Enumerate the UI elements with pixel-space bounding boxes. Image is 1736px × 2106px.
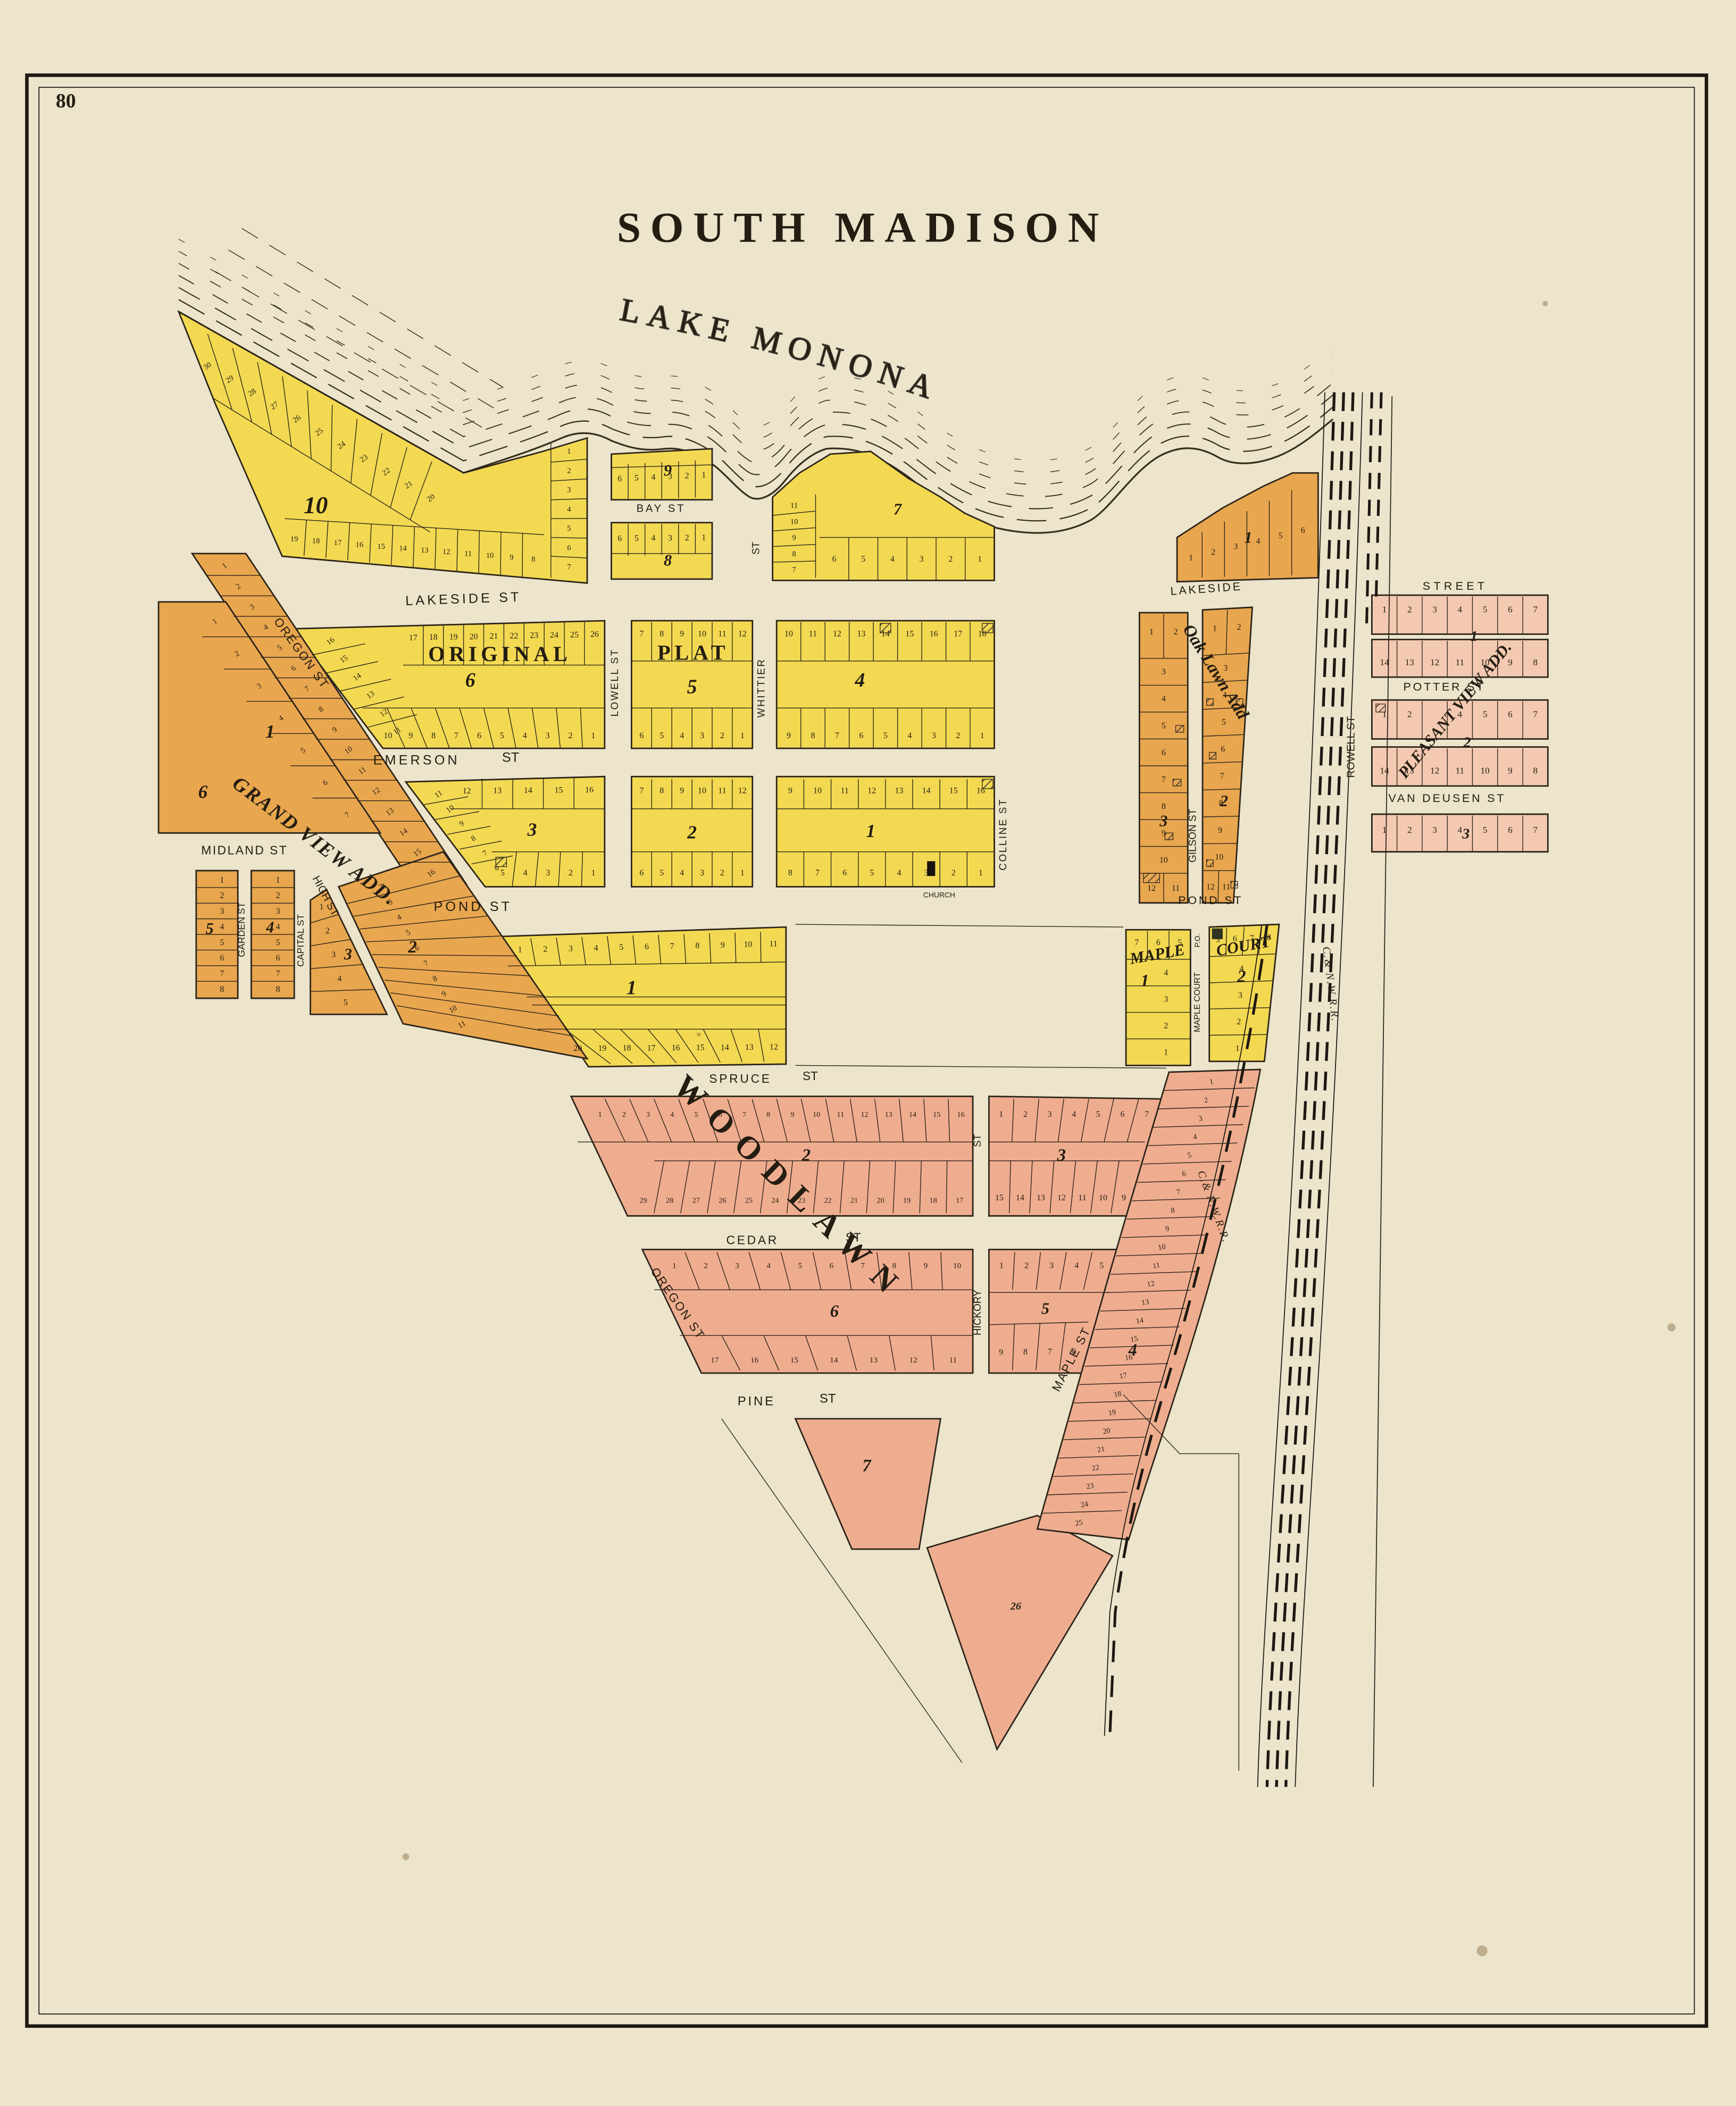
lot-number: 2 — [622, 1110, 626, 1119]
lot-number: 17 — [1119, 1371, 1128, 1381]
lot-number: 10 — [813, 1110, 820, 1119]
lot-number: 2 — [685, 533, 689, 542]
lot-number: 11 — [1222, 882, 1230, 891]
lot-number: 5 — [1279, 531, 1283, 540]
building-hatched — [1173, 779, 1181, 786]
lot-number: 1 — [999, 1261, 1004, 1270]
street-label-spruce_st: ST — [803, 1069, 818, 1083]
lot-number: 2 — [1024, 1261, 1029, 1270]
paper-stain — [1542, 301, 1548, 306]
paper-stain — [1667, 1323, 1675, 1331]
lot-number: 10 — [486, 551, 494, 560]
lot-number: 9 — [680, 786, 684, 795]
block-number-ol1: 1 — [1244, 529, 1252, 547]
lot-number: 2 — [948, 555, 953, 564]
lot-number: 3 — [220, 907, 224, 916]
block-number-wd7: 7 — [862, 1456, 872, 1475]
lot-number: 2 — [1407, 604, 1412, 614]
lot-number: 1 — [702, 533, 706, 542]
street-label-pond_e: POND ST — [1178, 894, 1243, 907]
building-hatched — [1144, 873, 1159, 883]
block-number-pond1: 1 — [627, 976, 637, 999]
street-label-midland: MIDLAND ST — [201, 843, 288, 857]
lot-number: 9 — [1218, 826, 1222, 835]
lot-number: 12 — [1430, 766, 1439, 776]
lot-number: 11 — [949, 1356, 957, 1365]
lot-number: 4 — [680, 868, 684, 878]
lot-number: 8 — [660, 630, 664, 639]
lot-number: 11 — [718, 630, 726, 639]
lot-number: 16 — [930, 630, 938, 639]
lot-number: 7 — [1162, 775, 1166, 784]
lot-number: 8 — [276, 985, 280, 994]
lot-number: 5 — [500, 868, 505, 878]
railroad-track — [1286, 392, 1353, 1787]
lot-number: 4 — [1458, 825, 1463, 835]
lot-number: 6 — [1301, 526, 1305, 535]
lot-number: 12 — [738, 786, 747, 795]
lot-number: 4 — [220, 922, 224, 931]
lot-number: 11 — [840, 786, 848, 795]
street-label-gilson: GILSON ST — [1187, 808, 1198, 862]
block-number-wd4: 4 — [1128, 1341, 1137, 1360]
paper-stain — [403, 1853, 410, 1860]
lot-number: 22 — [1091, 1463, 1100, 1473]
lot-number: 12 — [443, 548, 450, 556]
lot-number: 9 — [999, 1348, 1003, 1357]
addition-label-plat: PLAT — [657, 640, 729, 664]
row-line — [796, 924, 1123, 927]
lot-number: 5 — [1483, 825, 1488, 835]
lot-number: 10 — [953, 1261, 961, 1270]
lot-number: 3 — [1048, 1110, 1052, 1119]
lot-number: 7 — [1533, 604, 1538, 614]
street-label-emerson: EMERSON — [373, 753, 460, 767]
lot-number: 5 — [1483, 709, 1488, 720]
lot-number: 10 — [383, 731, 392, 740]
lot-number: 2 — [685, 471, 689, 480]
lot-number: 4 — [766, 1261, 771, 1270]
lot-number: 8 — [792, 550, 796, 558]
lot-number: 4 — [1164, 968, 1168, 977]
street-label-hickory_st_upper: ST — [972, 1134, 983, 1147]
page-number: 80 — [56, 90, 76, 112]
lot-number: 27 — [692, 1197, 700, 1205]
lot-number: 14 — [922, 786, 931, 795]
block-number-wd26: 26 — [1010, 1601, 1022, 1612]
block-number-op5: 5 — [687, 676, 697, 698]
lot-number: 9 — [510, 554, 513, 562]
lot-number: 19 — [598, 1044, 606, 1053]
lot-number: 14 — [1136, 1316, 1145, 1326]
lot-number: 6 — [1508, 825, 1513, 835]
lot-number: 18 — [312, 537, 320, 546]
lot-number: 6 — [1508, 604, 1513, 614]
lot-number: 3 — [1432, 825, 1437, 835]
lot-number: 1 — [276, 875, 280, 884]
lot-number: 4 — [670, 1110, 674, 1119]
block-number-pv2: 2 — [1463, 734, 1471, 751]
lot-number: 1 — [1189, 553, 1193, 562]
lot-number: 19 — [449, 633, 458, 642]
lot-number: 14 — [1016, 1193, 1024, 1202]
lot-number: 1 — [220, 875, 224, 884]
lot-number: 22 — [510, 631, 518, 640]
building-hatched — [1176, 725, 1184, 732]
lot-number: 8 — [811, 731, 815, 740]
lot-number: 7 — [1145, 1110, 1149, 1119]
lot-number: 10 — [790, 517, 798, 526]
lot-number: 6 — [567, 544, 571, 552]
block-op4 — [777, 621, 994, 748]
block-number-mc1: 1 — [1140, 971, 1149, 990]
lot-number: 29 — [640, 1197, 647, 1205]
lot-number: 5 — [798, 1261, 802, 1270]
lot-number: 15 — [790, 1356, 798, 1365]
lot-number: 10 — [813, 786, 822, 795]
street-label-maple_court: MAPLE COURT — [1193, 972, 1202, 1032]
lot-number: 6 — [842, 868, 847, 878]
lot-line — [761, 932, 761, 962]
lot-number: 11 — [790, 502, 798, 510]
lot-number: 4 — [338, 974, 342, 983]
lot-number: 8 — [1533, 657, 1538, 667]
lot-number: 7 — [639, 630, 644, 639]
block-number-pv1: 1 — [1470, 628, 1478, 645]
lot-number: 14 — [1380, 766, 1389, 776]
lot-number: 1 — [979, 868, 983, 878]
lot-number: 8 — [1162, 802, 1166, 811]
lot-number: 5 — [619, 943, 623, 952]
block-number-ol2: 2 — [1220, 792, 1228, 810]
lot-number: 11 — [464, 550, 472, 558]
lot-number: 15 — [995, 1193, 1004, 1202]
lot-number: 12 — [909, 1356, 917, 1365]
lot-number: 2 — [1023, 1110, 1028, 1119]
lot-number: 4 — [523, 868, 528, 878]
street-label-capital: CAPITAL ST — [295, 914, 306, 967]
lot-number: 2 — [569, 731, 573, 740]
block-number-op9: 9 — [664, 461, 672, 479]
street-label-hickory: HICKORY — [972, 1290, 983, 1335]
lot-number: 3 — [932, 731, 936, 740]
lot-number: 3 — [1164, 995, 1168, 1004]
lot-number: 5 — [883, 731, 888, 740]
block-number-wd6: 6 — [830, 1302, 839, 1321]
lake-name: LAKE MONONA — [617, 292, 945, 408]
lot-number: 7 — [1048, 1347, 1052, 1356]
block-wd26 — [927, 1516, 1113, 1750]
street-label-lakeside_w: LAKESIDE ST — [405, 590, 522, 609]
lot-number: 13 — [857, 630, 865, 639]
lot-number: 1 — [978, 555, 982, 564]
lot-number: 9 — [1122, 1193, 1126, 1202]
lot-number: 15 — [933, 1110, 940, 1119]
lot-number: 5 — [1096, 1110, 1100, 1119]
lot-number: 4 — [651, 534, 655, 543]
lot-number: 6 — [1162, 748, 1166, 757]
lot-number: 7 — [1533, 825, 1538, 835]
lot-number: 13 — [745, 1043, 754, 1052]
lot-number: 21 — [489, 632, 498, 641]
lot-number: 4 — [1256, 537, 1260, 546]
lot-number: 7 — [1533, 709, 1538, 720]
lot-number: 1 — [598, 1110, 602, 1119]
lot-number: 6 — [276, 954, 280, 963]
block-number-op1: 1 — [866, 820, 875, 841]
lot-number: 6 — [639, 731, 644, 740]
lot-number: 3 — [668, 533, 672, 542]
lot-number: 10 — [1099, 1193, 1107, 1202]
lot-number: 2 — [220, 891, 224, 900]
lot-number: 12 — [463, 787, 471, 796]
lot-number: 6 — [1221, 745, 1225, 754]
lot-number: 3 — [546, 868, 550, 878]
lot-number: 1 — [591, 868, 596, 878]
building-hatched — [982, 623, 993, 633]
lot-number: 6 — [645, 942, 649, 951]
lot-number: 12 — [1057, 1193, 1066, 1202]
lot-number: 7 — [792, 566, 796, 574]
street-label-pond_w: POND ST — [433, 899, 512, 914]
lot-number: 2 — [567, 466, 571, 475]
lot-number: 4 — [276, 922, 280, 931]
lot-number: 8 — [788, 868, 792, 878]
lot-number: 4 — [1162, 695, 1166, 704]
block-number-op3: 3 — [527, 818, 537, 840]
lot-number: 7 — [567, 563, 571, 572]
block-number-gv2: 2 — [407, 938, 416, 957]
lot-number: 3 — [1238, 991, 1242, 1000]
lot-number: 11 — [837, 1110, 845, 1119]
lot-number: 14 — [524, 786, 532, 795]
lot-number: 12 — [1146, 1279, 1155, 1289]
lot-number: 5 — [1222, 717, 1226, 726]
lot-number: 23 — [1086, 1482, 1095, 1491]
lot-number: 15 — [949, 786, 958, 795]
street-label-bay: BAY ST — [637, 503, 686, 515]
lot-number: 11 — [809, 630, 817, 639]
block-number-mc2: 2 — [1237, 967, 1246, 987]
lot-number: 2 — [704, 1261, 708, 1270]
lot-number: 11 — [1456, 766, 1465, 776]
lot-number: 7 — [220, 970, 224, 979]
lot-number: 6 — [832, 555, 836, 564]
lot-number: 20 — [470, 632, 478, 641]
lot-number: 24 — [1080, 1500, 1089, 1509]
block-ol1 — [1177, 473, 1318, 582]
lot-number: 5 — [635, 473, 639, 482]
lot-number: 2 — [952, 868, 956, 878]
lot-number: 20 — [573, 1044, 582, 1053]
lot-number: 5 — [344, 998, 348, 1007]
block-number-pv3: 3 — [1462, 825, 1470, 842]
lot-number: 10 — [1159, 856, 1168, 865]
lot-number: 9 — [790, 1110, 794, 1119]
lot-number: 4 — [1458, 604, 1463, 614]
lot-number: 13 — [1405, 657, 1414, 667]
lot-number: 13 — [1037, 1193, 1045, 1202]
lot-number: 10 — [784, 630, 793, 639]
south-madison-plat-map: 80SOUTH MADISONLAKE MONONA30292827262524… — [0, 0, 1736, 2105]
street-label-spruce: SPRUCE — [709, 1072, 771, 1085]
lot-number: 10 — [1215, 853, 1223, 862]
lot-number: 9 — [721, 941, 725, 950]
lot-number: 8 — [531, 555, 535, 564]
lot-number: 6 — [477, 731, 481, 740]
lot-number: 18 — [1113, 1390, 1122, 1399]
lot-number: 3 — [1432, 604, 1437, 614]
lot-number: 6 — [1508, 709, 1513, 720]
lot-number: 11 — [1172, 884, 1180, 893]
lot-number: 3 — [567, 486, 571, 495]
lot-number: 1 — [1213, 624, 1217, 633]
lot-number: 9 — [1508, 657, 1513, 667]
lot-number: 5 — [500, 731, 504, 740]
lot-number: 8 — [695, 941, 699, 950]
lot-number: 26 — [719, 1197, 726, 1205]
lot-number: 1 — [1236, 1044, 1240, 1053]
lot-number: 5 — [635, 534, 639, 543]
building-hatched — [1231, 881, 1238, 888]
lot-number: 1 — [702, 471, 706, 480]
street-label-emerson_st: ST — [502, 750, 519, 765]
lot-number: 24 — [550, 631, 558, 640]
lot-number: 5 — [1099, 1261, 1104, 1270]
lot-number: 3 — [331, 950, 336, 959]
lot-number: 3 — [276, 907, 280, 916]
lot-number: 8 — [220, 985, 224, 994]
lot-number: 15 — [377, 542, 385, 551]
lot-number: 15 — [696, 1043, 705, 1052]
lot-number: 7 — [815, 868, 820, 878]
lot-number: 6 — [617, 534, 622, 543]
lot-number: 1 — [1382, 604, 1387, 614]
street-label-colline: COLLINE ST — [998, 798, 1009, 871]
lot-number: 8 — [1533, 766, 1538, 776]
lot-number: 4 — [1074, 1261, 1079, 1270]
railroad-track — [1276, 392, 1343, 1787]
building-hatched — [1165, 833, 1173, 840]
lot-number: 8 — [766, 1110, 770, 1119]
lot-number: 6 — [220, 954, 224, 963]
lot-number: 4 — [897, 868, 901, 878]
lot-number: 12 — [1430, 657, 1439, 667]
lot-number: 10 — [1157, 1242, 1166, 1252]
lot-number: 25 — [570, 630, 579, 639]
lot-number: 4 — [567, 505, 571, 514]
lot-number: 12 — [1147, 884, 1156, 893]
lot-number: 7 — [276, 970, 280, 979]
lot-number: 1 — [1164, 1048, 1168, 1057]
addition-label-original: ORIGINAL — [428, 642, 571, 666]
lot-number: 21 — [1097, 1444, 1106, 1454]
railroad-spur — [1366, 392, 1372, 632]
lot-number: 6 — [859, 731, 863, 740]
lot-number: 25 — [745, 1197, 753, 1205]
lot-number: 11 — [1078, 1193, 1086, 1202]
lot-number: 2 — [543, 945, 547, 954]
block-number-gv6: 6 — [198, 781, 208, 803]
lot-number: 21 — [850, 1197, 858, 1205]
lot-number: 12 — [770, 1043, 778, 1052]
lot-line — [1203, 843, 1237, 844]
lot-number: 13 — [421, 546, 429, 555]
lot-number: 3 — [569, 944, 573, 953]
lot-number: 7 — [670, 942, 674, 951]
lot-number: 7 — [1134, 938, 1139, 947]
post-office-building — [1212, 929, 1223, 939]
lot-number: 26 — [590, 630, 599, 639]
lot-number: 1 — [672, 1261, 677, 1270]
lot-number: 4 — [680, 731, 684, 740]
lot-number: 16 — [957, 1110, 964, 1119]
block-number-op8: 8 — [664, 551, 672, 570]
lot-number: 20 — [1102, 1426, 1111, 1436]
lot-number: 5 — [276, 938, 280, 947]
lot-number: 13 — [895, 786, 903, 795]
lot-number: 11 — [1152, 1261, 1161, 1271]
street-label-po: P.O. — [1193, 933, 1201, 947]
building-hatched — [1207, 860, 1214, 867]
lot-number: 3 — [700, 868, 704, 878]
lot-number: 5 — [660, 868, 664, 878]
lot-number: 3 — [546, 731, 550, 740]
block-number-op2: 2 — [687, 821, 697, 842]
lot-number: 12 — [1206, 882, 1215, 891]
lot-number: 2 — [569, 868, 573, 878]
lot-number: 14 — [830, 1356, 838, 1365]
block-number-op7: 7 — [894, 500, 903, 519]
lot-number: 7 — [454, 731, 458, 740]
lot-number: 3 — [1233, 542, 1238, 551]
lot-number: 5 — [567, 524, 571, 533]
lot-number: 17 — [954, 630, 962, 639]
paper-stain — [1476, 1945, 1487, 1956]
lot-number: 4 — [594, 943, 598, 952]
lot-number: 6 — [1120, 1110, 1124, 1119]
block-number-op4: 4 — [854, 669, 865, 691]
lot-number: 1 — [980, 731, 984, 740]
block-number-op10: 10 — [304, 491, 328, 519]
lot-number: 2 — [956, 731, 960, 740]
lot-number: 17 — [956, 1197, 963, 1205]
street-label-whittier: WHITTIER — [756, 658, 767, 718]
street-label-whittier_st: ST — [750, 541, 762, 555]
block-number-gv4: 4 — [265, 918, 274, 936]
street-label-street: STREET — [1423, 580, 1488, 592]
lot-number: 3 — [920, 555, 924, 564]
block-number-wd5: 5 — [1041, 1300, 1049, 1318]
lot-number: 2 — [1407, 709, 1412, 720]
lot-number: 11 — [769, 940, 777, 949]
block-pv1a — [1372, 595, 1548, 634]
lot-number: 9 — [680, 630, 684, 639]
lot-number: 1 — [567, 447, 571, 456]
block-number-wd3: 3 — [1057, 1146, 1066, 1165]
lot-number: 9 — [408, 731, 413, 740]
block-number-op6: 6 — [465, 669, 475, 691]
building-hatched — [1209, 753, 1216, 759]
lot-number: 28 — [666, 1197, 673, 1205]
building-hatched — [1207, 699, 1214, 706]
lot-number: 9 — [1508, 766, 1513, 776]
lot-number: 18 — [623, 1044, 631, 1053]
lot-number: 20 — [877, 1197, 884, 1205]
lot-number: 6 — [829, 1261, 833, 1270]
lot-number: 1 — [740, 731, 745, 740]
lot-number: 16 — [356, 540, 364, 549]
